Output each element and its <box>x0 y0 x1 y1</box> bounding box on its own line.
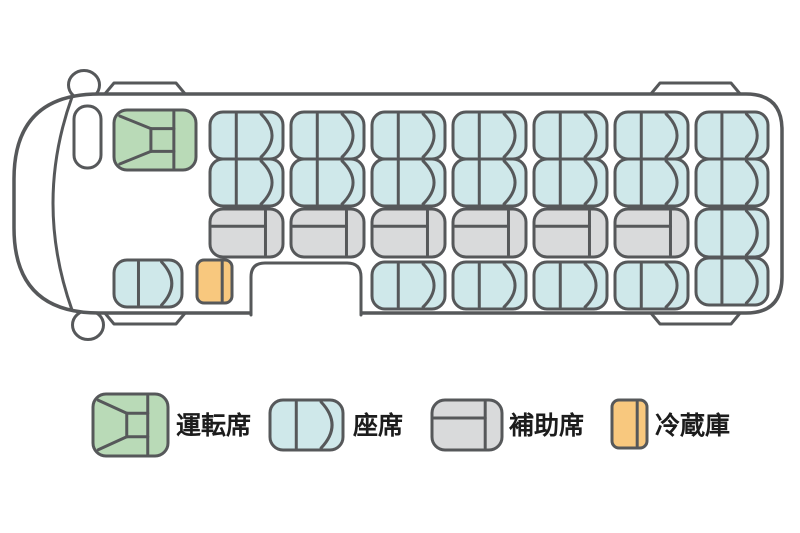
passenger-seat <box>534 159 607 206</box>
passenger-seat <box>453 112 526 159</box>
passenger-seat <box>615 262 688 309</box>
passenger-seat <box>534 112 607 159</box>
bus-seat-layout-page: 運転席 座席 補助席 冷蔵庫 <box>0 0 800 533</box>
legend-label-driver: 運転席 <box>176 411 251 440</box>
auxiliary-seat <box>210 209 283 257</box>
passenger-seat <box>615 159 688 206</box>
passenger-seat <box>696 112 768 159</box>
passenger-seat <box>453 262 526 309</box>
driver-seat <box>93 394 168 456</box>
legend-item-aux: 補助席 <box>432 400 584 450</box>
passenger-seat <box>372 262 445 309</box>
passenger-seat <box>291 159 364 206</box>
driver-seat-icon <box>93 394 168 456</box>
passenger-seat <box>696 258 768 305</box>
bus-seat-diagram: 運転席 座席 補助席 冷蔵庫 <box>0 0 800 533</box>
passenger-seat <box>696 159 768 206</box>
auxiliary-seat-icon <box>432 400 502 450</box>
auxiliary-seat <box>615 209 688 257</box>
auxiliary-seat <box>432 400 502 450</box>
passenger-seat <box>615 112 688 159</box>
passenger-seat <box>696 209 768 257</box>
passenger-seat <box>291 112 364 159</box>
legend-label-fridge: 冷蔵庫 <box>655 411 730 440</box>
auxiliary-seat <box>534 209 607 257</box>
passenger-seat <box>372 159 445 206</box>
refrigerator-icon <box>612 400 647 448</box>
legend-label-aux: 補助席 <box>508 411 584 440</box>
passenger-seat <box>114 260 182 307</box>
passenger-seat <box>210 112 283 159</box>
passenger-seat <box>372 112 445 159</box>
refrigerator <box>197 260 232 303</box>
passenger-seat <box>210 159 283 206</box>
legend-item-driver: 運転席 <box>93 394 251 456</box>
auxiliary-seat <box>291 209 364 257</box>
front-side-window <box>74 106 101 168</box>
entrance-area <box>251 263 361 315</box>
legend: 運転席 座席 補助席 冷蔵庫 <box>93 394 730 456</box>
legend-item-fridge: 冷蔵庫 <box>612 400 730 448</box>
legend-label-seat: 座席 <box>353 411 403 440</box>
refrigerator <box>612 400 647 448</box>
legend-item-seat: 座席 <box>270 400 403 450</box>
auxiliary-seat <box>453 209 526 257</box>
passenger-seat-icon <box>270 400 343 450</box>
auxiliary-seat <box>372 209 445 257</box>
side-mirror-bottom-icon <box>73 311 104 340</box>
passenger-seat <box>270 400 343 450</box>
passenger-seat <box>534 262 607 309</box>
driver-seat <box>114 110 196 170</box>
passenger-seat <box>453 159 526 206</box>
